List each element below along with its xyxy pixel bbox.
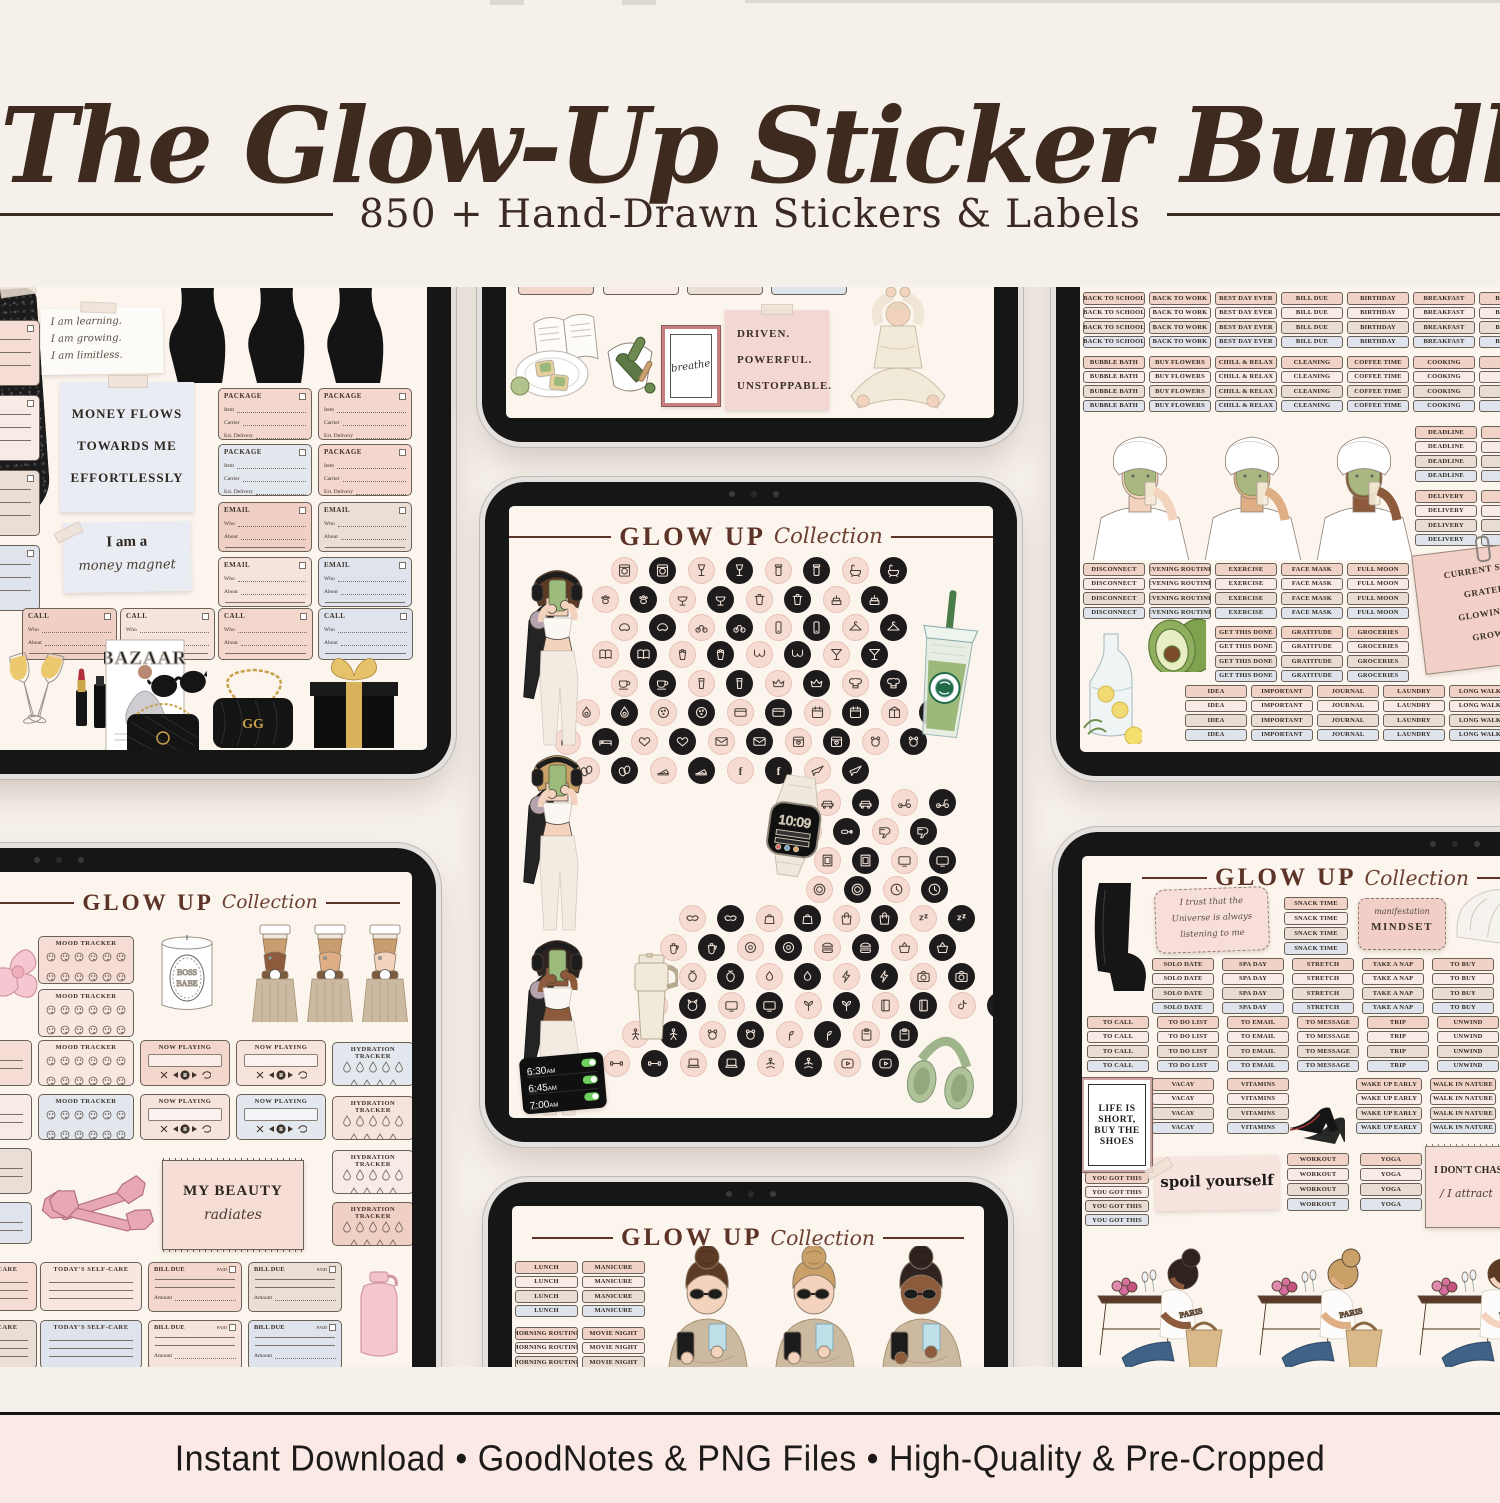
sticker-icon-frame (852, 847, 879, 874)
sticker-label: LONG WALK (1449, 700, 1500, 713)
sticker-label: SPA DAY (1222, 1002, 1284, 1015)
rule-line (0, 414, 31, 415)
mood-face (88, 1002, 98, 1020)
selfcare-card: TODAY'S SELF-CARE (0, 1262, 37, 1311)
water-drop (362, 1133, 372, 1140)
footer-bar: Instant Download • GoodNotes & PNG Files… (0, 1412, 1500, 1503)
towel-face-mask-woman-illustration (1085, 426, 1191, 560)
sticker-icon-phone (803, 614, 830, 641)
sticker-label: VITAMINS (1227, 1107, 1289, 1120)
smart-watch-illustration: 10:09 (743, 770, 848, 886)
you-got-this-label: YOU GOT THIS (1085, 1172, 1149, 1184)
sticker-label: DEADLINE (1415, 470, 1477, 483)
amount-field: Amount (149, 1351, 241, 1359)
mood-tracker-card: MOOD TRACKER (38, 1040, 134, 1086)
zigzag (163, 1158, 303, 1161)
rule-line (0, 590, 31, 591)
sticker-label: STRETCH (1292, 987, 1354, 1000)
water-drop (342, 1169, 352, 1187)
tablet-mockup-top-right: BACK TO SCHOOLBACK TO SCHOOLBACK TO SCHO… (1056, 287, 1500, 776)
sticker-label: MORNING ROUTINE (515, 1327, 578, 1340)
sticker-icon-burger (814, 934, 841, 961)
mood-face (102, 1073, 112, 1086)
hydration-drops (333, 1220, 412, 1246)
card-field: Est. Delivery (319, 431, 411, 439)
tablet-screen-bottom-left: GLOW UPCollection MOOD TRACKERMOOD TRACK… (0, 872, 412, 1367)
sticker-icon-latte (726, 670, 753, 697)
sticker-icon-grill (707, 586, 734, 613)
mood-face (88, 1127, 98, 1140)
sticker-label: IDEA (1185, 685, 1247, 698)
sticker-label: COOKING (1413, 356, 1475, 369)
chk (27, 325, 34, 332)
sticker-icon-paw (630, 586, 657, 613)
sticker-label: BACK TO SCHOOL (1083, 336, 1145, 349)
header-rule-left (532, 1237, 613, 1239)
yoga-label: YOGA (1360, 1198, 1422, 1211)
now-reading-card: NOW READING (0, 1202, 32, 1244)
card-title: HYDRATION TRACKER (333, 1043, 412, 1060)
card-head: EMAIL (219, 558, 311, 569)
water-drop (355, 1115, 365, 1133)
you-got-this-label: YOU GOT THIS (1085, 1186, 1149, 1198)
water-drop (368, 1115, 378, 1133)
sticker-icon-bike (726, 614, 753, 641)
sticker-label: TO MESSAGE (1297, 1045, 1359, 1058)
coffee-hand-illustration (303, 922, 355, 1022)
sticker-label: FACE MASK (1281, 607, 1343, 620)
snack-time-label: SNACK TIME (1284, 927, 1348, 940)
breathe-frame: breathe (662, 326, 720, 406)
sticker-icon-dumbbell (603, 1050, 630, 1077)
sticker-label: BIRTHDAY (1347, 336, 1409, 349)
sticker-label: COOKING (1413, 371, 1475, 384)
mood-face (74, 1073, 84, 1086)
sticker-label: FULL MOON (1347, 563, 1409, 576)
sticker-icon-cookie (688, 699, 715, 726)
sticker-icon-croissant (611, 614, 638, 641)
rule-line (225, 602, 305, 603)
mood-face (46, 1073, 56, 1086)
sticker-icon-calendar (842, 699, 869, 726)
workout-label: WORKOUT (1287, 1183, 1349, 1196)
package-label: PACKAGEItemCarrierEst. Delivery (218, 444, 312, 496)
shoes-quote-line: LIFE IS (1098, 1104, 1135, 1114)
now-reading-card: NOW READING (0, 1148, 32, 1194)
sticker-label: LONG WALK (1449, 729, 1500, 742)
workout-label: WORKOUT (1287, 1168, 1349, 1181)
sticker-label: TO DO LIST (1157, 1031, 1219, 1044)
rule-line (49, 1298, 133, 1299)
sticker-label: LUNCH (515, 1261, 578, 1274)
sticker-label: TRIP (1367, 1031, 1429, 1044)
header-rule-right (883, 1237, 964, 1239)
package-label: PACKAGEItemCarrierEst. Delivery (318, 444, 412, 496)
bill-due-card: BILL DUEPAIDAmount (148, 1320, 242, 1367)
now-playing-controls (237, 1070, 325, 1080)
sticker-icon-basket (891, 934, 918, 961)
sticker-icon-dryer (872, 818, 899, 845)
sticker-label: BREAKFAST (1413, 292, 1475, 305)
sticker-icon-grill (669, 586, 696, 613)
card-title: NOW READING (0, 1203, 31, 1213)
sticker-icon-mask (679, 905, 706, 932)
bill-due-card: BILL DUEPAIDAmount (248, 1262, 342, 1312)
sticker-label: BACK TO SCHOOL (1083, 321, 1145, 334)
affirmation-note: I am learning.I am growing.I am limitles… (40, 307, 163, 375)
rule-line (0, 339, 31, 340)
sticker-label: BEST DAY EVER (1215, 321, 1277, 334)
sticker-label: DELIVERY (1415, 534, 1477, 547)
rule-line (255, 1337, 335, 1338)
sticker-icon-jar (765, 557, 792, 584)
shoes-quote-inner: LIFE ISSHORT,BUY THESHOES (1088, 1084, 1146, 1166)
water-drop (381, 1221, 391, 1239)
sticker-icon-sprout (814, 1021, 841, 1048)
collection-script: Collection (1365, 866, 1470, 890)
water-drop (362, 1079, 372, 1086)
rule-line (49, 1348, 133, 1349)
mindset-label: manifestationMINDSET (1358, 898, 1446, 950)
sticker-label: EXERCISE (1215, 592, 1277, 605)
card-title: NOW READING (0, 1149, 31, 1159)
sticker-label: VITAMINS (1227, 1122, 1289, 1135)
sticker-label: BIRTHDAY (1347, 292, 1409, 305)
sticker-label: STRETCH (1292, 958, 1354, 971)
sticker-label: MANICURE (582, 1276, 645, 1289)
avocado-toast-plate-illustration (510, 346, 590, 401)
zigzag (163, 1249, 303, 1252)
rule-line (0, 1222, 23, 1223)
mood-face (60, 1053, 70, 1071)
mood-tracker-card: MOOD TRACKER (38, 936, 134, 984)
sticker-icon-washer (649, 557, 676, 584)
sticker-label: IDEA (1185, 714, 1247, 727)
card-field: Who (121, 625, 214, 633)
sticker-label: TO EMAIL (1227, 1031, 1289, 1044)
card-head: PACKAGE (219, 389, 311, 400)
card-field: Carrier (219, 418, 311, 426)
sticker-label: BRUNCH (1479, 336, 1500, 349)
sticker-label: COFFEE TIME (1347, 371, 1409, 384)
water-drop (375, 1187, 385, 1194)
sticker-icon-bag (756, 905, 783, 932)
mood-face (60, 969, 70, 984)
sticker-label: TO EMAIL (1227, 1060, 1289, 1073)
sticker-icon-laptop (680, 1050, 707, 1077)
avocado-illustration (1144, 614, 1206, 672)
sticker-label: LUNCH (515, 1305, 578, 1318)
svg-text:BABE: BABE (176, 979, 197, 988)
sticker-label: DISCONNECT (1083, 607, 1145, 620)
water-drop (349, 1133, 359, 1140)
sticker-label: GET THIS DONE (1215, 655, 1277, 668)
rule-line (0, 515, 31, 516)
card-title: TODAY'S SELF-CARE (0, 1321, 36, 1331)
rule-line (0, 1060, 23, 1061)
gift-box-illustration (306, 648, 402, 750)
sticker-label: TRIP (1367, 1045, 1429, 1058)
mood-face (46, 1002, 56, 1020)
sticker-icon-croissant (649, 614, 676, 641)
photo-edge-artifact (745, 0, 1500, 3)
sticker-label: CLEANING (1281, 371, 1343, 384)
sticker-icon-clipboard (853, 1021, 880, 1048)
header-rule-left (1142, 877, 1207, 879)
hydration-drops (333, 1114, 412, 1140)
money-note-line: TOWARDS ME (60, 438, 194, 454)
tablet-screen-center: GLOW UPCollectionff 10:09 6:30AMAlarm6:4… (509, 506, 993, 1118)
sticker-label: TO BUY (1432, 958, 1494, 971)
rule-line (0, 1114, 23, 1115)
card-field: Item (219, 461, 311, 469)
mood-face (102, 1022, 112, 1037)
card-field: About (23, 638, 116, 646)
sticker-label: LAUNDRY (1383, 685, 1445, 698)
sticker-label: GROCERIES (1347, 626, 1409, 639)
rule-line (0, 1282, 28, 1283)
email-label: EMAILWhoAbout (218, 502, 312, 552)
sticker-icon-crown (765, 670, 792, 697)
sticker-label: BUY FLOWERS (1149, 400, 1211, 413)
chk (27, 400, 34, 407)
sticker-icon-mask (717, 905, 744, 932)
water-drop (394, 1169, 404, 1187)
water-drop (375, 1079, 385, 1086)
card-field: About (219, 638, 312, 646)
card-field: Item (219, 405, 311, 413)
sticker-icon-martini (823, 641, 850, 668)
card-title: HYDRATION TRACKER (333, 1097, 412, 1114)
mood-faces (39, 1000, 133, 1037)
chk (27, 475, 34, 482)
cut-label-stub (518, 287, 594, 295)
tablet-screen-bottom-center: GLOW UPCollectionLUNCHLUNCHLUNCHLUNCHMAN… (512, 1206, 984, 1367)
sticker-icon-tv (891, 847, 918, 874)
sticker-label: CHILL & RELAX (1215, 385, 1277, 398)
email-label: EMAILWhoAbout (318, 557, 412, 607)
rule-line (155, 1279, 235, 1280)
now-playing-card: NOW PLAYING (236, 1040, 326, 1086)
card-title: MOOD TRACKER (39, 990, 133, 1000)
sticker-icon-plant (795, 992, 822, 1019)
tablet-collage: I am learning.I am growing.I am limitles… (0, 287, 1500, 1367)
driven-note: DRIVEN.POWERFUL.UNSTOPPABLE. (725, 310, 829, 410)
sticker-label: TO DO LIST (1157, 1045, 1219, 1058)
mood-face (60, 1022, 70, 1037)
water-drop (381, 1169, 391, 1187)
phone-woman-illustration (764, 1246, 864, 1367)
mood-face (74, 1053, 84, 1071)
workout-label: WORKOUT (1287, 1153, 1349, 1166)
mood-face (46, 949, 56, 967)
sticker-label: MOVIE NIGHT (582, 1342, 645, 1355)
hydration-tracker-card: HYDRATION TRACKER (332, 1202, 412, 1246)
sticker-icon-tv (718, 992, 745, 1019)
water-bottle-illustration (356, 1270, 406, 1366)
sticker-label: TO MESSAGE (1297, 1031, 1359, 1044)
affirmation-line: I am growing. (51, 333, 122, 345)
mindset-caps: MINDSET (1359, 921, 1445, 933)
breathe-text: breathe (671, 358, 712, 374)
water-drop (355, 1061, 365, 1079)
sticker-icon-bear (737, 1021, 764, 1048)
sticker-label: GROCERIES (1347, 655, 1409, 668)
sticker-label: TAKE A NAP (1362, 973, 1424, 986)
sticker-label: TO DO LIST (1157, 1016, 1219, 1029)
sticker-label: TO CALL (1087, 1016, 1149, 1029)
sticker-icon-book (630, 641, 657, 668)
mood-face (60, 1107, 70, 1125)
sticker-label: MANICURE (582, 1305, 645, 1318)
mood-face (88, 1053, 98, 1071)
sticker-label: LAUNDRY (1383, 729, 1445, 742)
water-drop (375, 1133, 385, 1140)
dont-line: I DON'T CHASE (1434, 1165, 1500, 1176)
sticker-label (1481, 519, 1500, 532)
rule-line (155, 1287, 235, 1288)
rule-line (0, 1356, 28, 1357)
sticker-label: IMPORTANT (1251, 685, 1313, 698)
sticker-label (1479, 371, 1500, 384)
rule-line (325, 602, 405, 603)
sticker-label: FACE MASK (1281, 578, 1343, 591)
sticker-icon-washer (611, 557, 638, 584)
sticker-label: BRUNCH (1479, 321, 1500, 334)
magnet-note-top: I am a (63, 533, 191, 552)
affirmation-line: I am limitless. (51, 350, 123, 362)
money-magnet-note: I am amoney magnet (62, 521, 191, 593)
sticker-label (1481, 470, 1500, 483)
water-drop (368, 1221, 378, 1239)
mood-faces (39, 947, 133, 984)
quilted-bag-illustration (125, 698, 203, 750)
sticker-icon-crown (803, 670, 830, 697)
now-playing-controls (141, 1070, 229, 1080)
mindset-script: manifestation (1359, 907, 1445, 916)
card-head: PACKAGE (319, 389, 411, 400)
rule-line (325, 547, 405, 548)
sticker-icon-sprout (776, 1021, 803, 1048)
package-label: PACKAGEItemCarrierEst. Delivery (318, 388, 412, 440)
phone-woman-illustration (871, 1246, 971, 1367)
mood-face (60, 1127, 70, 1140)
sticker-label: WALK IN NATURE (1430, 1093, 1496, 1106)
sticker-label: DEADLINE (1415, 426, 1477, 439)
card-title: TODAY'S SELF-CARE (41, 1321, 141, 1331)
sticker-label: TO CALL (1087, 1031, 1149, 1044)
card-title: NOW PLAYING (141, 1095, 229, 1105)
card-field: Est. Delivery (219, 487, 311, 495)
sticker-label: BEST DAY EVER (1215, 336, 1277, 349)
subtitle-rule-left (0, 213, 333, 216)
sticker-icon-zzz (948, 905, 975, 932)
sticker-icon-pear (794, 963, 821, 990)
card-field: Carrier (319, 418, 411, 426)
sticker-icon-popcorn (669, 641, 696, 668)
sticker-icon-shoe (688, 757, 715, 784)
rule-line (0, 489, 31, 490)
now-playing-card: NOW PLAYING (140, 1040, 230, 1086)
sticker-icon-tiktok (987, 992, 993, 1019)
alarm-toggle (581, 1058, 597, 1067)
sticker-icon-coffee (611, 670, 638, 697)
sticker-icon-hanger (842, 614, 869, 641)
sticker-icon-plate (844, 876, 871, 903)
cut-label-card (0, 320, 40, 386)
card-title: NOW PLAYING (141, 1041, 229, 1051)
sticker-label: STRETCH (1292, 973, 1354, 986)
sticker-icon-phone (765, 614, 792, 641)
sticker-icon-car (852, 789, 879, 816)
card-field: Who (219, 519, 311, 527)
mood-face (116, 1127, 126, 1140)
sticker-label: BACK TO SCHOOL (1083, 307, 1145, 320)
collection-header-bottom-left: GLOW UPCollection (0, 886, 400, 919)
card-title: NOW PLAYING (237, 1041, 325, 1051)
package-label: PACKAGEItemCarrierEst. Delivery (218, 388, 312, 440)
chain-bag-illustration: GG (205, 668, 303, 750)
sticker-label: VACAY (1152, 1093, 1214, 1106)
water-drop (368, 1169, 378, 1187)
sticker-icon-trash (746, 586, 773, 613)
sticker-label: DEADLINE (1415, 441, 1477, 454)
rule-line (0, 1348, 28, 1349)
sticker-icon-facebook: f (727, 757, 754, 784)
shoes-quote-line: SHORT, (1098, 1115, 1136, 1125)
sticker-icon-tv (756, 992, 783, 1019)
sticker-label: BREAKFAST (1413, 307, 1475, 320)
header-rule-right (891, 536, 993, 538)
rule-line (49, 1356, 133, 1357)
alarm-toggle (584, 1092, 600, 1101)
sticker-icon-avocado (611, 699, 638, 726)
card-head: CALL (219, 609, 312, 620)
sticker-icon-cookie (650, 699, 677, 726)
sticker-icon-dryer (910, 818, 937, 845)
mood-face (102, 1002, 112, 1020)
rule-line (155, 1345, 235, 1346)
tablet-mockup-bottom-right: GLOW UPCollection I trust that theUniver… (1058, 832, 1500, 1367)
mood-face (102, 1107, 112, 1125)
card-title: MOOD TRACKER (39, 1095, 133, 1105)
now-playing-card: NOW PLAYING (140, 1094, 230, 1140)
water-drop (375, 1239, 385, 1246)
sticker-icon-tv (929, 847, 956, 874)
sticker-label: EVENING ROUTINE (1149, 563, 1211, 576)
green-drink-illustration (892, 586, 993, 745)
card-field: Est. Delivery (319, 487, 411, 495)
mood-face (74, 1022, 84, 1037)
sticker-label: GET THIS DONE (1215, 641, 1277, 654)
sticker-label: EXERCISE (1215, 563, 1277, 576)
rule-line (255, 1287, 335, 1288)
water-drop (355, 1221, 365, 1239)
sticker-label: GRATITUDE (1281, 670, 1343, 683)
spoil-text: spoil yourself (1155, 1171, 1279, 1191)
dont-line-script: / I attract (1440, 1187, 1493, 1200)
hydration-drops (333, 1168, 412, 1194)
sticker-label: EVENING ROUTINE (1149, 592, 1211, 605)
sticker-label: EXERCISE (1215, 607, 1277, 620)
sticker-icon-laptop (718, 1050, 745, 1077)
sticker-label: IMPORTANT (1251, 729, 1313, 742)
mood-face (88, 1022, 98, 1037)
sticker-icon-shopbag (833, 905, 860, 932)
selfcare-card: TODAY'S SELF-CARE (0, 1320, 37, 1367)
sticker-label: MOVIE NIGHT (582, 1356, 645, 1367)
phone-woman-illustration (657, 1246, 757, 1367)
